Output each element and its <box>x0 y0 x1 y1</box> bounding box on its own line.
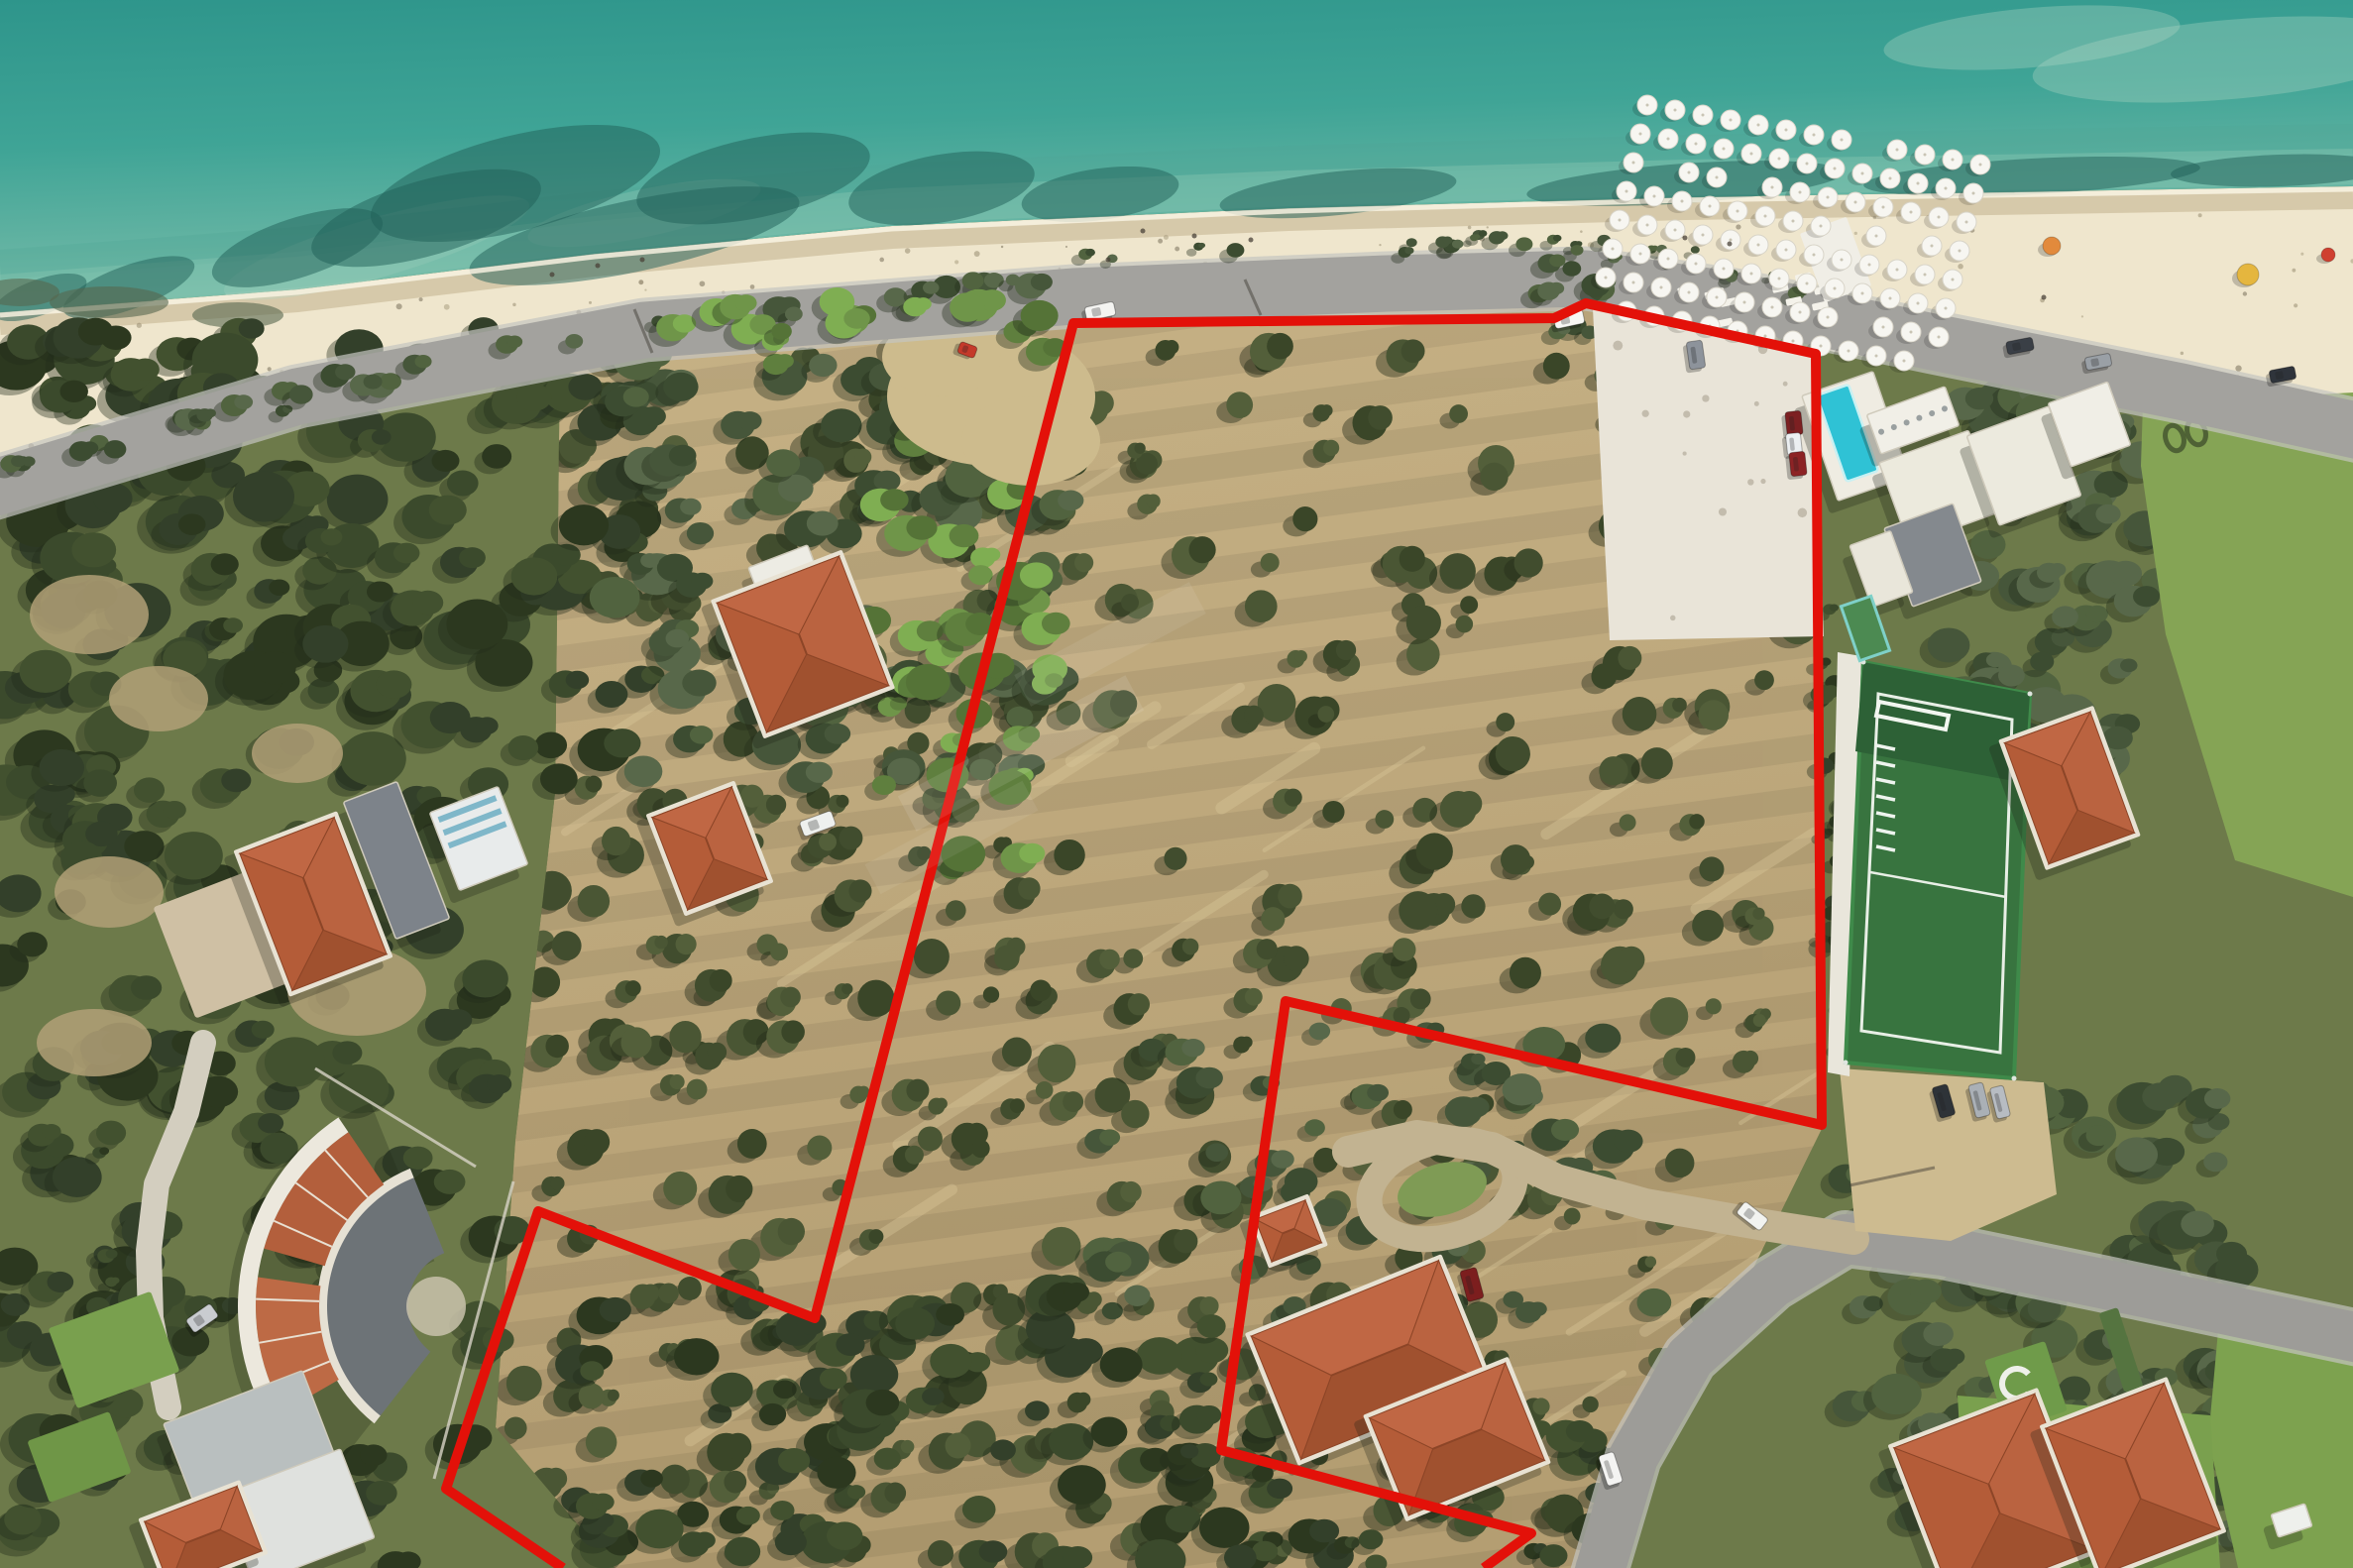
scrub <box>1928 627 1970 662</box>
scrub <box>674 1338 720 1375</box>
scrub <box>302 625 348 663</box>
scrub <box>936 1303 964 1326</box>
umbrella-tip <box>1764 215 1767 218</box>
tree <box>1599 756 1627 785</box>
person-dot <box>1192 234 1197 239</box>
scrub <box>1945 1349 1964 1365</box>
scrub <box>624 755 663 787</box>
scrub <box>1019 843 1045 864</box>
person-dot <box>640 258 645 263</box>
tree <box>1368 405 1393 430</box>
pad-speckle <box>1783 382 1788 387</box>
tree <box>914 939 950 974</box>
tree <box>1394 1100 1412 1119</box>
scrub <box>1571 245 1584 256</box>
car-glass <box>2090 358 2099 367</box>
scrub <box>1548 282 1564 294</box>
scrub <box>666 629 690 648</box>
scrub <box>1497 231 1508 240</box>
scrub <box>1025 1400 1050 1420</box>
scrub <box>372 429 392 445</box>
tree <box>737 1129 767 1159</box>
scrub <box>641 406 666 426</box>
umbrella-tip <box>1813 134 1816 137</box>
scrub <box>254 651 296 685</box>
tree <box>1582 1397 1598 1412</box>
tree <box>1496 713 1514 731</box>
tree <box>857 980 894 1017</box>
scrub <box>1463 1097 1489 1118</box>
umbrella-tip <box>1834 168 1837 170</box>
scrub <box>682 669 716 696</box>
umbrella-tip <box>1827 316 1830 319</box>
scrub <box>2181 1211 2214 1237</box>
tree <box>1480 463 1508 491</box>
tree <box>841 983 852 994</box>
pad-speckle <box>1683 452 1687 456</box>
scrub <box>1058 491 1083 511</box>
tree <box>1261 553 1280 572</box>
scrub <box>430 702 471 733</box>
scrub <box>446 600 507 650</box>
scrub <box>600 1297 631 1322</box>
scrub <box>766 449 800 477</box>
scrub <box>239 318 265 338</box>
tree <box>946 1432 971 1458</box>
scrub <box>604 728 640 757</box>
scrub <box>635 1510 683 1549</box>
tree <box>1641 747 1673 779</box>
pad-speckle <box>1747 479 1753 485</box>
umbrella-tip <box>1785 249 1788 252</box>
scrub <box>1404 247 1413 254</box>
umbrella-tip <box>1917 302 1920 305</box>
tree <box>676 934 697 954</box>
umbrella-tip <box>1639 253 1642 256</box>
fence-post <box>2012 1076 2017 1081</box>
scrub <box>1031 274 1053 290</box>
tree <box>1439 553 1475 589</box>
scrub <box>265 1037 325 1086</box>
tree <box>1753 1014 1766 1027</box>
tree <box>1002 1038 1032 1067</box>
scrub <box>1099 1129 1120 1145</box>
scrub <box>669 445 697 467</box>
tree <box>1123 949 1143 968</box>
pad-speckle <box>1760 479 1765 484</box>
scrub <box>623 387 649 406</box>
scrub <box>1965 388 1993 409</box>
scrub <box>1479 230 1488 237</box>
scrub <box>487 1074 511 1094</box>
scrub <box>873 471 900 492</box>
scrub <box>40 749 84 786</box>
scrub <box>785 307 803 322</box>
scrub <box>2052 606 2078 627</box>
tree <box>670 1074 685 1089</box>
tree <box>1320 404 1332 416</box>
tree <box>1449 404 1468 423</box>
tree <box>728 1239 760 1271</box>
tree <box>1623 697 1657 731</box>
tree <box>906 1079 929 1102</box>
tree <box>766 795 786 815</box>
fence-post <box>2028 692 2033 697</box>
scrub <box>979 1540 1008 1562</box>
scrub <box>906 664 951 701</box>
scrub <box>930 1344 971 1379</box>
tree <box>848 879 871 902</box>
tree <box>781 1020 805 1044</box>
umbrella-tip <box>1667 138 1670 141</box>
tree <box>994 946 1020 971</box>
tree <box>1257 939 1278 959</box>
tree <box>1564 1208 1581 1225</box>
tree <box>1244 706 1264 726</box>
scrub <box>1180 1444 1198 1458</box>
tree <box>584 1129 610 1155</box>
umbrella-tip <box>1861 292 1864 295</box>
tree <box>1399 891 1437 930</box>
tree <box>1650 997 1688 1035</box>
scrub <box>1471 1054 1485 1064</box>
scrub <box>565 334 583 349</box>
scrub <box>836 1333 864 1356</box>
umbrella-tip <box>1965 221 1968 224</box>
tree <box>726 1176 752 1202</box>
umbrella-tip <box>1924 274 1927 277</box>
scrub <box>1205 1143 1228 1162</box>
scrub <box>1090 1416 1127 1446</box>
scrub <box>1271 1150 1293 1168</box>
umbrella-tip <box>1757 244 1760 247</box>
umbrella-tip <box>1639 133 1642 136</box>
scrub <box>2142 1082 2178 1110</box>
scrub <box>906 515 937 539</box>
tree <box>1698 700 1729 730</box>
scrub <box>2086 1125 2112 1146</box>
scrub <box>1549 254 1565 267</box>
pad-speckle <box>1642 410 1649 417</box>
umbrella-tip <box>1882 326 1885 329</box>
umbrella-tip <box>1730 119 1733 122</box>
umbrella-tip <box>1646 224 1649 227</box>
shore-rocks <box>50 286 168 318</box>
scrub <box>393 543 420 564</box>
umbrella-tip <box>1605 277 1608 280</box>
umbrella-tip <box>1903 360 1906 363</box>
scrub <box>403 1147 433 1170</box>
umbrella-tip <box>1952 279 1955 281</box>
scrub <box>434 1170 466 1194</box>
tree <box>946 900 966 921</box>
umbrella-tip <box>1702 114 1705 117</box>
scrub <box>737 411 761 430</box>
person-dot <box>1106 258 1111 263</box>
scrub <box>47 1272 73 1292</box>
aerial-scene-svg <box>0 0 2353 1568</box>
scrub <box>1137 1337 1182 1375</box>
tree <box>1063 1091 1083 1112</box>
umbrella-tip <box>1737 210 1739 213</box>
scrub <box>366 1481 397 1506</box>
scrub <box>1452 240 1463 249</box>
umbrella-tip <box>1827 196 1830 199</box>
color-umbrella <box>2237 264 2259 285</box>
umbrella-tip <box>1972 192 1975 195</box>
scrub <box>1100 1347 1143 1382</box>
scrub <box>332 1041 362 1064</box>
pad-speckle <box>1719 507 1727 515</box>
scrub <box>983 548 1001 562</box>
scrub <box>1986 653 2005 668</box>
scrub <box>950 524 979 547</box>
scrub <box>771 323 792 340</box>
scrub <box>827 1521 862 1550</box>
scrub <box>725 1537 760 1567</box>
scrub <box>1198 243 1205 248</box>
tree <box>1543 353 1570 380</box>
scrub <box>516 384 551 411</box>
scrub <box>412 591 443 615</box>
scrub <box>258 1113 283 1133</box>
tree <box>936 990 960 1015</box>
scrub <box>414 355 431 368</box>
umbrella-tip <box>1785 129 1788 132</box>
scrub <box>874 1448 901 1470</box>
umbrella-tip <box>1979 164 1982 167</box>
scrub <box>1442 237 1452 245</box>
tree <box>1416 833 1453 869</box>
tree <box>608 1390 619 1401</box>
clearing <box>252 724 343 783</box>
tree <box>778 1218 805 1245</box>
tree <box>545 1035 568 1058</box>
tree <box>1030 980 1052 1002</box>
sports-court <box>1844 660 2033 1081</box>
umbrella-tip <box>1861 172 1864 175</box>
scrub <box>20 650 72 693</box>
scrub <box>360 1444 387 1466</box>
scrub <box>566 671 590 690</box>
tree <box>1406 606 1441 640</box>
scrub <box>1551 1119 1579 1141</box>
tree <box>770 944 788 961</box>
scrub <box>962 272 984 289</box>
person-dot <box>1141 229 1146 234</box>
scrub <box>821 408 861 442</box>
umbrella-tip <box>1959 250 1961 253</box>
tree <box>1699 856 1724 881</box>
scrub <box>81 441 98 455</box>
umbrella-tip <box>1632 281 1635 284</box>
umbrella-tip <box>1896 149 1899 152</box>
scrub <box>843 308 869 329</box>
pad-speckle <box>1754 401 1759 406</box>
tree <box>868 1229 883 1244</box>
color-umbrella <box>2321 248 2335 262</box>
scrub <box>2115 1137 2158 1172</box>
color-umbrella <box>2043 237 2061 255</box>
tree <box>1754 670 1774 690</box>
scrub <box>1021 300 1059 331</box>
umbrella-tip <box>1806 282 1809 285</box>
tree <box>1322 801 1344 823</box>
tree <box>901 1440 915 1454</box>
umbrella-tip <box>1931 245 1934 248</box>
umbrella-tip <box>1612 248 1615 251</box>
scrub <box>962 1496 996 1523</box>
scrub <box>1042 613 1070 635</box>
pad-speckle <box>1683 410 1690 417</box>
scrub <box>2204 1088 2230 1109</box>
tree <box>506 1366 542 1401</box>
umbrella-tip <box>1674 109 1677 112</box>
tree <box>1099 950 1120 970</box>
umbrella-tip <box>1841 259 1844 262</box>
umbrella-tip <box>1723 148 1726 151</box>
scrub <box>2133 586 2160 607</box>
scrub <box>1871 1374 1921 1414</box>
scrub <box>1006 275 1020 286</box>
scrub <box>640 553 659 568</box>
scrub <box>1200 1373 1218 1387</box>
scrub <box>2049 563 2066 576</box>
umbrella-tip <box>1716 296 1719 299</box>
scrub <box>1197 1314 1226 1338</box>
scrub <box>825 724 851 744</box>
tree <box>1261 907 1285 931</box>
umbrella-tip <box>1778 278 1781 280</box>
scrub <box>476 717 498 734</box>
umbrella-tip <box>1820 345 1823 348</box>
tree <box>1121 594 1139 612</box>
scrub-shadow <box>1463 240 1472 247</box>
scrub <box>1197 1405 1222 1424</box>
scrub <box>1923 1322 1954 1346</box>
umbrella-tip <box>1723 268 1726 271</box>
tree <box>1400 546 1425 572</box>
scrub <box>234 394 253 409</box>
scrub <box>71 532 116 567</box>
umbrella-tip <box>1625 190 1628 193</box>
scrub <box>2030 652 2054 672</box>
tree <box>1393 938 1416 961</box>
scrub <box>580 1361 604 1381</box>
tree <box>1188 536 1215 563</box>
umbrella-tip <box>1695 263 1698 266</box>
scrub <box>2120 658 2137 672</box>
umbrella-tip <box>1771 186 1774 189</box>
scrub-shadow <box>1186 249 1196 257</box>
pad-speckle <box>1798 508 1808 518</box>
scrub <box>895 1307 935 1340</box>
scrub <box>915 297 932 310</box>
scrub <box>432 450 460 472</box>
tree <box>1038 1045 1076 1083</box>
scrub <box>692 573 714 590</box>
scrub <box>134 777 165 802</box>
umbrella-tip <box>1674 229 1677 232</box>
tree <box>620 1027 651 1058</box>
scrub <box>1910 1280 1942 1304</box>
tree <box>725 1433 751 1460</box>
tree <box>1742 1051 1758 1066</box>
tree <box>545 1468 567 1490</box>
tree <box>1692 910 1724 942</box>
tree <box>1620 814 1636 831</box>
scrub <box>540 763 578 794</box>
tree <box>1645 1256 1657 1268</box>
clearing <box>109 666 208 731</box>
scrub <box>223 617 243 633</box>
tree <box>1164 847 1186 870</box>
umbrella-tip <box>1792 220 1795 223</box>
umbrella-tip <box>1750 153 1753 156</box>
umbrella-tip <box>1806 163 1809 166</box>
umbrella-tip <box>1646 104 1649 107</box>
umbrella-tip <box>1688 171 1691 174</box>
scrub <box>99 1147 109 1155</box>
tree <box>936 1098 948 1110</box>
scrub <box>592 1494 615 1512</box>
umbrella-tip <box>1952 159 1955 162</box>
tree <box>1456 616 1474 633</box>
scrub <box>78 318 113 346</box>
tree <box>724 1471 746 1494</box>
tree <box>1317 706 1334 723</box>
tree <box>1410 988 1431 1009</box>
umbrella-tip <box>1764 335 1767 338</box>
scrub <box>872 775 896 795</box>
umbrella-tip <box>1896 269 1899 272</box>
scrub <box>922 1388 945 1405</box>
tree <box>1245 590 1278 622</box>
scrub <box>736 1507 760 1525</box>
tree <box>1614 899 1633 919</box>
scrub <box>690 726 714 743</box>
scrub <box>445 1009 473 1031</box>
scrub <box>321 528 343 545</box>
tree <box>625 980 641 996</box>
scrub <box>1691 246 1700 253</box>
scrub <box>640 1470 663 1488</box>
scrub <box>1105 1252 1132 1273</box>
car-glass <box>2275 371 2284 380</box>
scrub <box>1474 234 1480 239</box>
scrub <box>2086 606 2108 622</box>
scrub <box>778 1448 810 1473</box>
scrub <box>1562 261 1581 276</box>
tree <box>1267 333 1293 360</box>
umbrella-tip <box>1750 273 1753 276</box>
scrub <box>559 504 609 545</box>
umbrella-tip <box>1889 297 1892 300</box>
scrub <box>221 769 251 793</box>
umbrella-tip <box>1917 182 1920 185</box>
umbrella-tip <box>1868 264 1871 267</box>
tree <box>1284 946 1309 971</box>
tree <box>1752 908 1764 920</box>
person-dot <box>1683 236 1688 241</box>
scrub <box>111 1278 119 1285</box>
tree <box>1510 957 1541 989</box>
scrub <box>106 1249 118 1258</box>
scrub <box>429 496 467 525</box>
scrub <box>163 801 185 819</box>
tree <box>1054 840 1084 870</box>
scrub <box>535 732 567 759</box>
